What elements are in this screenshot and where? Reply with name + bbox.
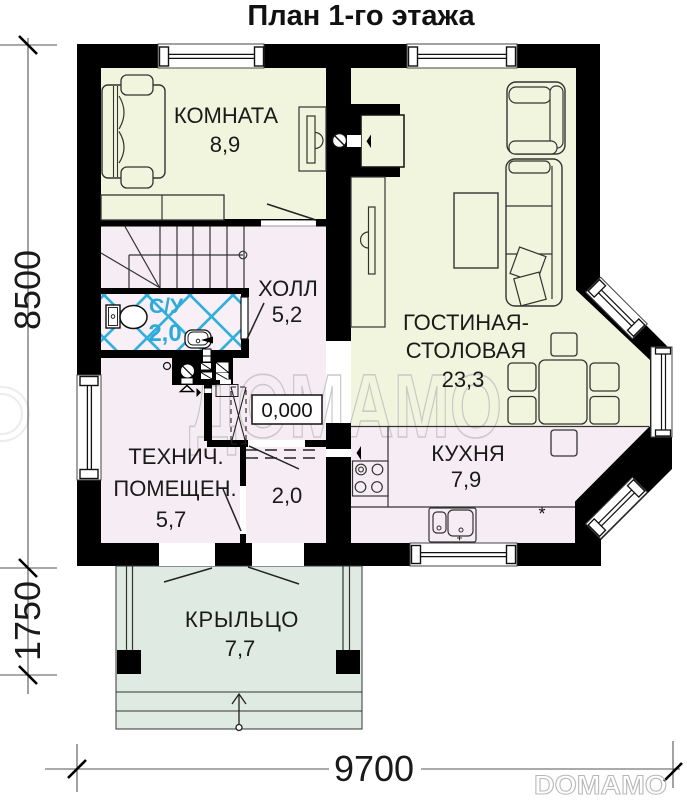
svg-text:С/У: С/У (149, 295, 184, 318)
svg-text:23,3: 23,3 (442, 367, 485, 392)
svg-text:5,2: 5,2 (272, 302, 303, 327)
svg-text:КУХНЯ: КУХНЯ (431, 441, 505, 466)
svg-text:КРЫЛЬЦО: КРЫЛЬЦО (185, 607, 299, 632)
svg-text:2,0: 2,0 (148, 320, 181, 347)
svg-text:DOMAMO: DOMAMO (534, 770, 667, 800)
svg-text:*: * (538, 504, 545, 524)
svg-text:ТЕХНИЧ.: ТЕХНИЧ. (128, 444, 223, 469)
svg-text:План 1-го этажа: План 1-го этажа (247, 0, 475, 32)
svg-text:8,9: 8,9 (210, 132, 241, 157)
svg-text:ПОМЕЩЕН.: ПОМЕЩЕН. (113, 476, 236, 501)
svg-text:8500: 8500 (7, 250, 48, 330)
svg-text:1750: 1750 (7, 581, 48, 661)
svg-text:2,0: 2,0 (272, 483, 303, 508)
svg-text:СТОЛОВАЯ: СТОЛОВАЯ (406, 338, 527, 363)
svg-text:ХОЛЛ: ХОЛЛ (258, 276, 318, 301)
svg-text:5,7: 5,7 (156, 507, 187, 532)
svg-text:7,9: 7,9 (451, 467, 482, 492)
svg-text:КОМНАТА: КОМНАТА (174, 103, 279, 128)
svg-text:9700: 9700 (334, 748, 414, 789)
svg-text:0,000: 0,000 (261, 399, 312, 422)
svg-text:7,7: 7,7 (225, 636, 256, 661)
svg-text:ГОСТИНАЯ-: ГОСТИНАЯ- (403, 310, 529, 335)
